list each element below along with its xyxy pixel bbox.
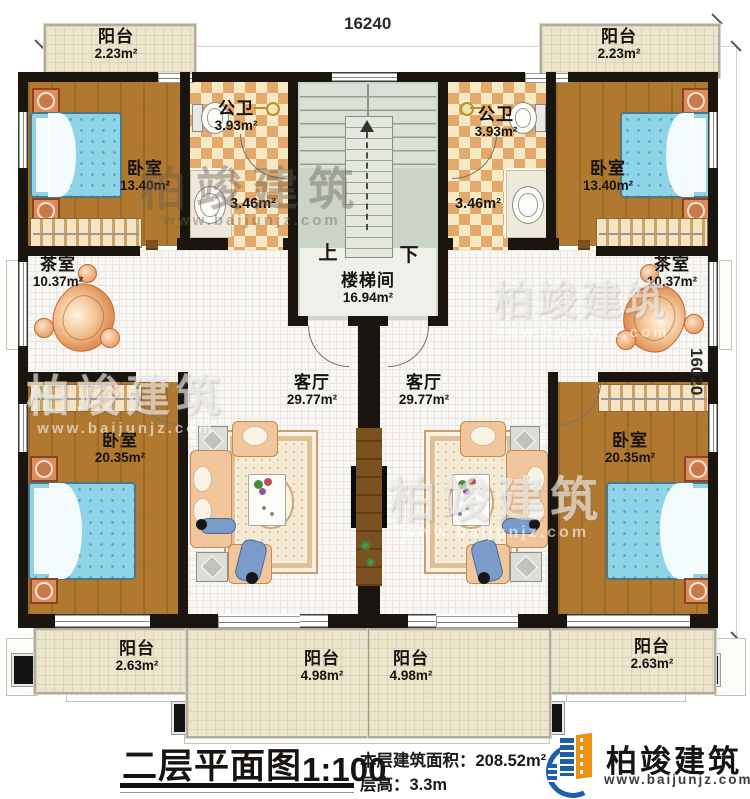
- person-head: [478, 572, 490, 584]
- wall-segment: [192, 72, 332, 82]
- room-label-bedroom-top-left: 卧室13.40m²: [120, 160, 170, 193]
- plan-title-text: 二层平面图: [122, 738, 302, 789]
- tea-stool: [34, 318, 54, 338]
- balcony-bottom-center-left: [186, 628, 370, 738]
- door-leaf: [578, 240, 590, 250]
- wall-segment: [358, 316, 380, 428]
- flower-decor: [463, 488, 470, 495]
- window: [708, 262, 718, 346]
- bed: [28, 482, 136, 580]
- tv-screen: [351, 466, 356, 528]
- washbasin-sink: [512, 186, 544, 224]
- window: [18, 404, 28, 452]
- window: [300, 614, 328, 628]
- plan-title: 二层平面图1:100: [122, 738, 386, 789]
- dimension-line-right: [736, 46, 737, 638]
- floor-height-info: 层高：3.3m: [360, 771, 447, 795]
- room-label-tea-right: 茶室10.37m²: [647, 256, 697, 289]
- room-label-wash-right: 3.46m²: [455, 197, 501, 212]
- wall-segment: [288, 72, 298, 320]
- room-label-stairwell: 楼梯间16.94m²: [341, 272, 395, 305]
- wall-segment: [18, 614, 55, 628]
- wall-segment: [508, 238, 559, 250]
- company-logo-icon: [544, 734, 600, 794]
- flower-decor: [264, 478, 272, 486]
- room-label-balcony-bottom-center-left: 阳台4.98m²: [301, 650, 344, 683]
- room-label-bedroom-top-right: 卧室13.40m²: [583, 160, 633, 193]
- room-label-wash-left: 3.46m²: [230, 197, 276, 212]
- wall-segment: [358, 586, 380, 614]
- stair-up-label: 上: [318, 238, 337, 265]
- title-underline-thin: [120, 792, 354, 793]
- bed: [606, 482, 714, 580]
- wall-segment: [180, 72, 190, 246]
- room-label-balcony-bottom-right: 阳台2.63m²: [631, 638, 674, 671]
- wall-segment: [708, 452, 718, 618]
- window: [332, 72, 397, 82]
- wall-segment: [428, 316, 448, 326]
- wall-segment: [438, 72, 448, 320]
- tea-stool: [684, 314, 704, 334]
- light-switch: [460, 102, 474, 116]
- room-label-bedroom-bottom-right: 卧室20.35m²: [605, 432, 655, 465]
- side-table: [510, 552, 542, 582]
- window: [708, 112, 718, 168]
- wall-segment: [18, 72, 28, 112]
- cup-decor: [270, 512, 274, 516]
- sofa-cushion: [526, 466, 545, 492]
- wall-segment: [18, 452, 28, 618]
- wall-segment: [150, 614, 218, 628]
- cup-decor: [262, 506, 266, 510]
- potted-plant: [360, 540, 371, 551]
- side-table: [196, 552, 228, 582]
- balcony-bottom-left: [34, 628, 188, 694]
- nightstand: [32, 88, 60, 114]
- cup-decor: [466, 506, 470, 510]
- balcony-sliding-door: [436, 616, 520, 628]
- company-logo-website: www.baijunjz.com: [604, 772, 750, 787]
- sofa-cushion: [470, 426, 496, 446]
- wall-segment: [178, 372, 188, 614]
- room-label-balcony-bottom-left: 阳台2.63m²: [116, 640, 159, 673]
- person-head: [246, 572, 258, 584]
- wall-segment: [18, 246, 140, 256]
- bed: [30, 112, 122, 198]
- stair-shaft: [345, 116, 393, 258]
- tea-stool: [616, 330, 636, 350]
- person-head: [529, 519, 540, 530]
- wardrobe: [596, 218, 708, 248]
- room-label-living-left: 客厅29.77m²: [287, 374, 337, 407]
- wall-segment: [18, 372, 136, 382]
- window: [55, 614, 150, 628]
- wall-segment: [18, 72, 158, 82]
- room-label-bedroom-bottom-left: 卧室20.35m²: [95, 432, 145, 465]
- wall-segment: [283, 238, 288, 250]
- dimension-right-value: 16020: [686, 348, 706, 395]
- tv-screen: [382, 466, 387, 528]
- person-head: [196, 519, 207, 530]
- dimension-tick: [711, 13, 722, 24]
- window: [18, 112, 28, 168]
- room-label-living-right: 客厅29.77m²: [399, 374, 449, 407]
- wall-segment: [518, 614, 567, 628]
- wall-segment: [708, 72, 718, 112]
- nightstand: [30, 456, 58, 482]
- wall-segment: [397, 72, 525, 82]
- washbasin-sink: [194, 186, 226, 224]
- stair-down-label: 下: [399, 240, 418, 267]
- wall-segment: [548, 372, 558, 614]
- dimension-top-value: 16240: [344, 14, 391, 34]
- wardrobe: [30, 218, 142, 248]
- tea-stool: [100, 328, 120, 348]
- room-label-balcony-bottom-center-right: 阳台4.98m²: [390, 650, 433, 683]
- room-label-balcony-top-right: 阳台2.23m²: [598, 28, 641, 61]
- floor-plan-canvas: 16240 16020: [0, 0, 750, 799]
- cup-decor: [458, 512, 462, 516]
- window: [18, 262, 28, 346]
- light-switch: [266, 102, 280, 116]
- wardrobe: [30, 384, 142, 412]
- room-label-bath-left: 公卫3.93m²: [215, 100, 258, 133]
- room-label-tea-left: 茶室10.37m²: [33, 256, 83, 289]
- window-sill: [719, 260, 732, 350]
- sofa-cushion: [242, 426, 268, 446]
- potted-plant: [366, 558, 375, 567]
- stair-arrow-line: [366, 132, 368, 230]
- wall-segment: [546, 72, 556, 246]
- nightstand: [30, 578, 58, 604]
- title-underline-thick: [120, 783, 354, 788]
- flower-decor: [468, 478, 476, 486]
- balcony-sliding-door: [218, 616, 302, 628]
- room-label-balcony-top-left: 阳台2.23m²: [95, 28, 138, 61]
- window: [567, 614, 690, 628]
- window: [708, 404, 718, 452]
- window: [408, 614, 436, 628]
- nightstand: [682, 88, 710, 114]
- room-label-bath-right: 公卫3.93m²: [475, 106, 518, 139]
- sofa-cushion: [193, 466, 212, 492]
- wall-segment: [328, 614, 408, 628]
- floor-area-info: 本层建筑面积：208.52m²: [360, 747, 546, 771]
- wall-segment: [448, 238, 453, 250]
- door-leaf: [146, 240, 158, 250]
- wall-segment: [177, 238, 228, 250]
- flower-decor: [259, 488, 266, 495]
- wall-segment: [288, 316, 308, 326]
- wall-segment: [568, 72, 718, 82]
- balcony-bottom-center-right: [368, 628, 551, 738]
- stair-arrow-head: [360, 120, 374, 132]
- wall-segment: [690, 614, 718, 628]
- bed: [620, 112, 712, 198]
